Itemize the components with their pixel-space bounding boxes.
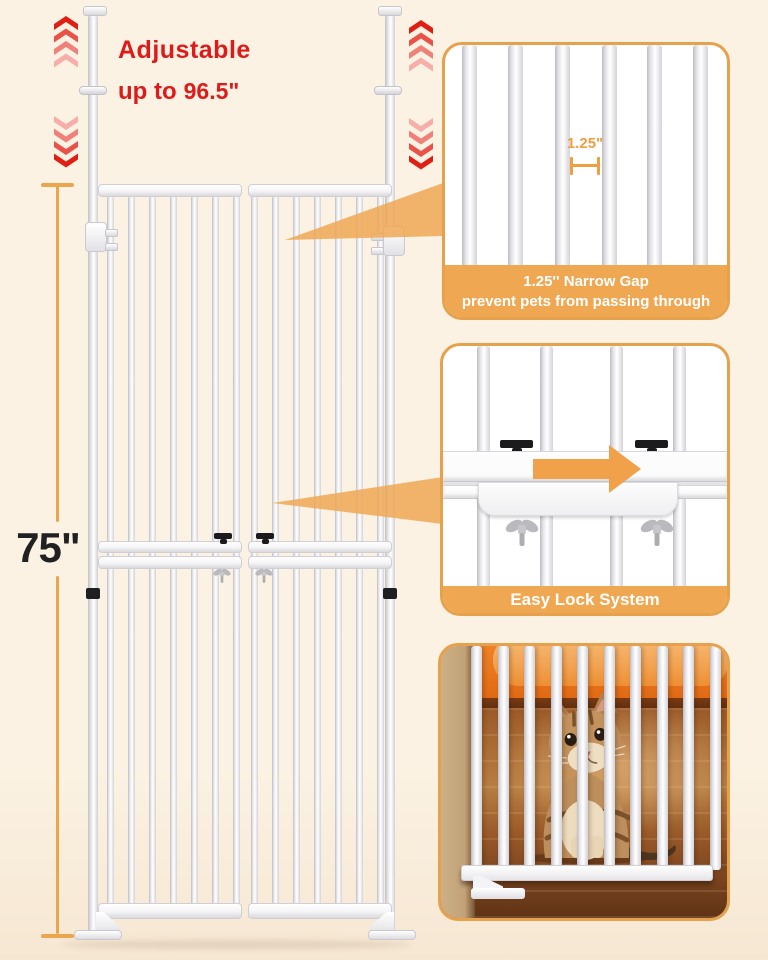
gate-bar bbox=[524, 646, 535, 870]
gap-measure-marker-icon bbox=[570, 157, 600, 175]
mount-bracket-right bbox=[383, 226, 405, 256]
measure-cap-bottom bbox=[41, 934, 74, 938]
tension-pole-left bbox=[88, 14, 98, 938]
pole-top-cap-left bbox=[83, 6, 107, 16]
gate-bar bbox=[630, 646, 641, 870]
pole-collar-left bbox=[79, 86, 107, 95]
narrow-gap-panel: 1.25" 1.25'' Narrow Gap prevent pets fro… bbox=[442, 42, 730, 320]
narrow-gap-caption: 1.25'' Narrow Gap prevent pets from pass… bbox=[445, 265, 727, 317]
wing-nut-icon bbox=[212, 568, 232, 584]
chevron-down-icon bbox=[54, 116, 78, 168]
pole-lock-band bbox=[86, 588, 100, 599]
gate-bar bbox=[657, 646, 668, 870]
bracket-prong bbox=[105, 243, 118, 251]
photo-gate-bars bbox=[441, 646, 727, 870]
headline-line2-value: 96.5" bbox=[184, 78, 240, 104]
gate-bar bbox=[498, 646, 509, 870]
lock-clamp bbox=[262, 539, 269, 544]
photo-gate-foot bbox=[471, 888, 525, 899]
easy-lock-panel: Easy Lock System bbox=[440, 343, 730, 616]
cat-photo-panel bbox=[438, 643, 730, 921]
headline-line2-prefix: up to bbox=[118, 78, 177, 105]
gate-bar bbox=[710, 646, 721, 870]
gate-shadow bbox=[62, 940, 412, 949]
headline-line1: Adjustable bbox=[118, 38, 251, 63]
gate-top-rail-right bbox=[248, 184, 392, 197]
photo-gate-bottom-rail bbox=[461, 865, 713, 881]
easy-lock-caption: Easy Lock System bbox=[443, 586, 727, 613]
gate-bar bbox=[683, 646, 694, 870]
lock-clamp bbox=[500, 440, 533, 448]
wing-nut-icon bbox=[254, 568, 274, 584]
caption-line2: prevent pets from passing through bbox=[445, 292, 727, 312]
lock-clamp bbox=[220, 539, 227, 544]
gate-bottom-rail-left bbox=[98, 903, 242, 919]
bracket-prong bbox=[371, 233, 384, 241]
pole-lock-band bbox=[383, 588, 397, 599]
caption-line1: 1.25'' Narrow Gap bbox=[445, 272, 727, 292]
gate-bottom-rail-right bbox=[248, 903, 392, 919]
mount-bracket-left bbox=[85, 222, 107, 252]
wing-nut-icon bbox=[504, 518, 540, 548]
bracket-prong bbox=[371, 247, 384, 255]
chevron-up-icon bbox=[409, 20, 433, 72]
tension-pole-right bbox=[385, 14, 395, 938]
product-infographic: Adjustable up to96.5" 75" bbox=[0, 0, 768, 960]
gate-bar bbox=[551, 646, 562, 870]
pole-collar-right bbox=[374, 86, 402, 95]
gate-top-rail-left bbox=[98, 184, 242, 197]
wing-nut-icon bbox=[639, 518, 675, 548]
headline: Adjustable up to96.5" bbox=[118, 38, 251, 104]
gate-bar bbox=[471, 646, 482, 870]
arrow-right-icon bbox=[533, 444, 643, 494]
bracket-prong bbox=[105, 229, 118, 237]
pole-top-cap-right bbox=[378, 6, 402, 16]
chevron-up-icon bbox=[54, 16, 78, 68]
gate-bar bbox=[604, 646, 615, 870]
gate-foot bbox=[368, 930, 416, 940]
gate-bar bbox=[577, 646, 588, 870]
chevron-down-icon bbox=[409, 118, 433, 170]
headline-line2: up to96.5" bbox=[118, 80, 251, 104]
gate-foot bbox=[74, 930, 122, 940]
gate-mid-rail bbox=[248, 541, 392, 553]
gap-dimension-label: 1.25" bbox=[543, 135, 627, 152]
